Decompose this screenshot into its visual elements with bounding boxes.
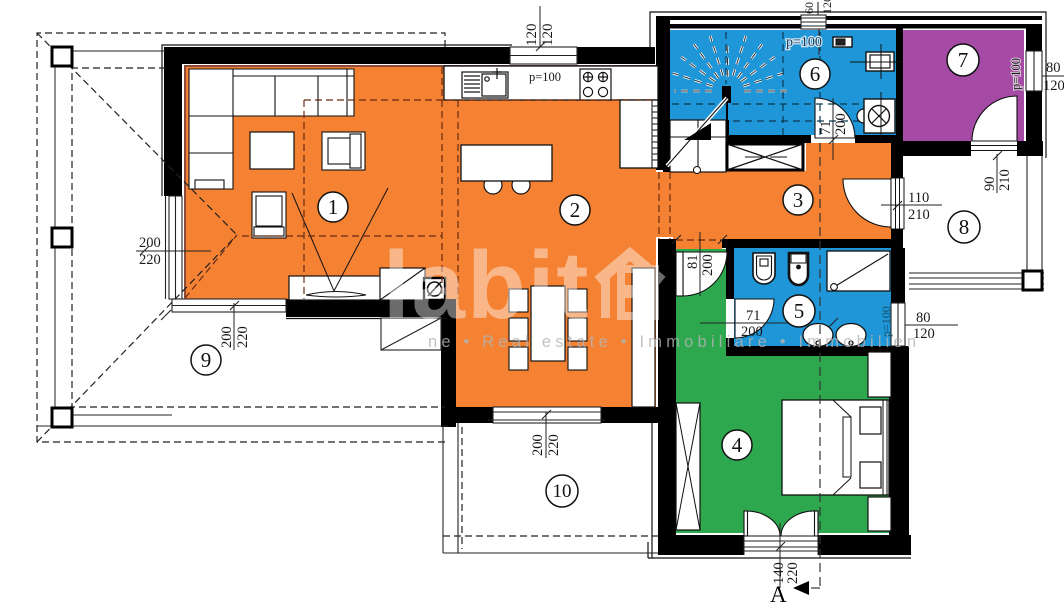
svg-text:1: 1 [328,195,339,219]
svg-text:210: 210 [908,207,930,223]
svg-text:120: 120 [1043,78,1064,94]
svg-text:200: 200 [530,434,546,456]
svg-text:80: 80 [1046,60,1061,76]
svg-text:80: 80 [916,310,931,326]
svg-text:220: 220 [139,252,161,268]
svg-text:6: 6 [810,62,821,86]
svg-text:A: A [770,582,787,602]
svg-text:labit: labit [383,232,590,339]
svg-text:p=100: p=100 [1009,58,1023,90]
svg-text:10: 10 [553,481,572,502]
svg-text:5: 5 [794,299,805,323]
svg-text:210: 210 [997,169,1013,191]
svg-text:200: 200 [833,113,849,135]
svg-text:3: 3 [793,188,804,212]
svg-text:p=100: p=100 [529,70,561,84]
svg-text:90: 90 [982,177,998,192]
svg-text:p=100: p=100 [786,35,822,50]
svg-text:220: 220 [235,326,251,348]
svg-text:81: 81 [685,255,701,270]
svg-text:220: 220 [546,434,562,456]
svg-text:120: 120 [524,24,540,47]
svg-text:8: 8 [959,215,970,239]
svg-text:220: 220 [785,562,801,584]
svg-text:60: 60 [802,2,816,14]
svg-text:2: 2 [570,198,581,222]
svg-text:71: 71 [818,121,834,136]
svg-text:200: 200 [139,235,161,251]
svg-text:7: 7 [958,48,969,72]
svg-text:71: 71 [746,308,761,324]
svg-text:110: 110 [908,190,929,206]
svg-text:4: 4 [732,433,743,457]
svg-text:ne • Real estate • Immobiliare: ne • Real estate • Immobiliare • Immobil… [428,333,920,351]
svg-text:120: 120 [820,0,834,14]
svg-text:200: 200 [700,254,716,276]
svg-text:120: 120 [540,24,556,47]
svg-text:9: 9 [201,348,212,372]
svg-text:200: 200 [219,326,235,348]
